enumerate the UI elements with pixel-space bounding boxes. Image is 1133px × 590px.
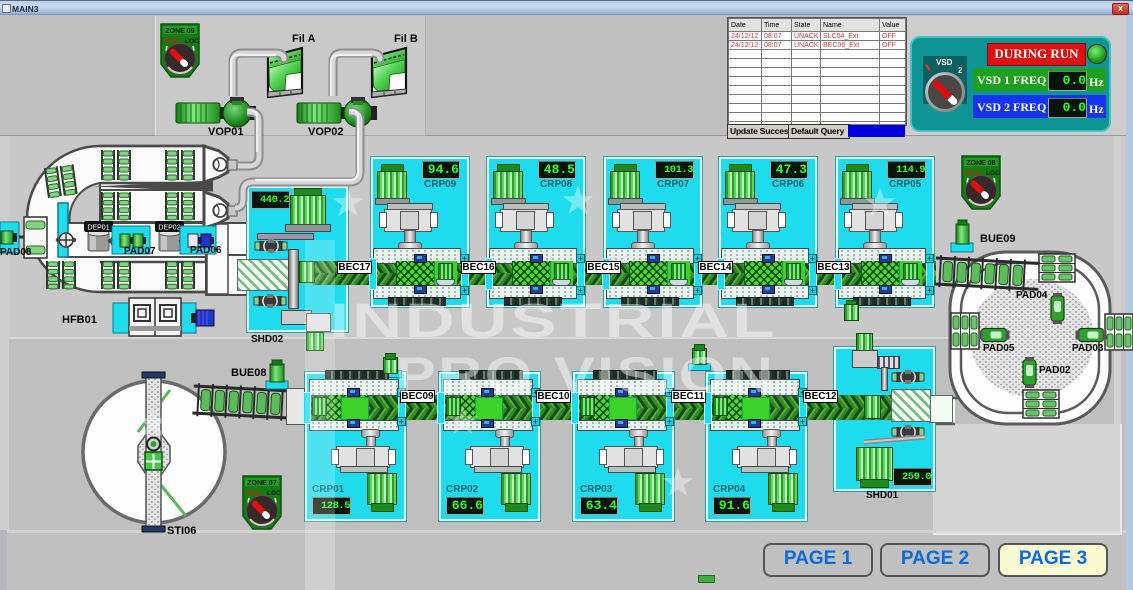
svg-text:ZONE 08: ZONE 08 [966,160,995,167]
svg-text:ZONE 09: ZONE 09 [165,28,194,35]
svg-text:DEP02: DEP02 [158,225,180,232]
svg-text:ZONE 07: ZONE 07 [247,480,276,487]
svg-text:DEP01: DEP01 [87,225,109,232]
